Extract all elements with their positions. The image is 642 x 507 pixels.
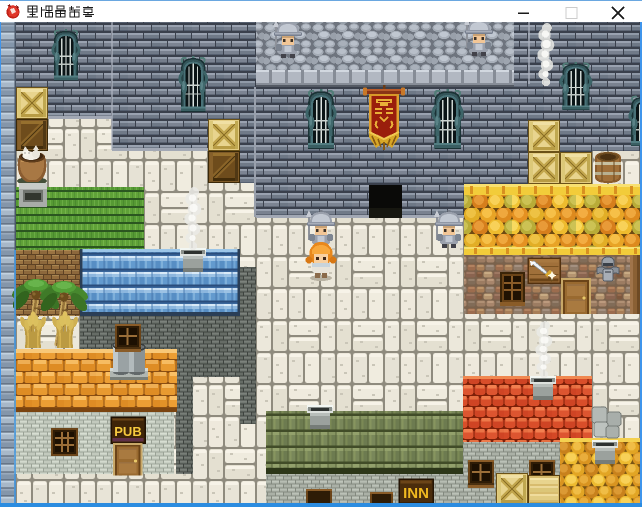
svg-text:INN: INN [403,485,429,502]
svg-text:PUB: PUB [114,424,141,439]
